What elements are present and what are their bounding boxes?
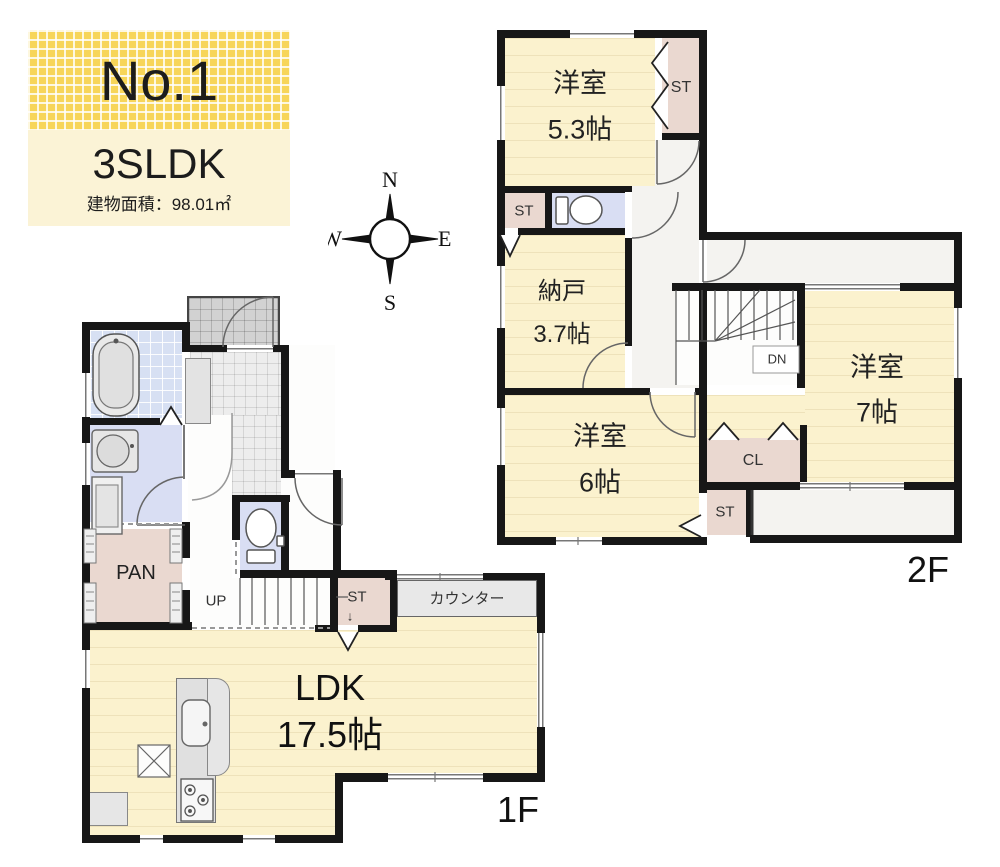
entrance-door-opening [227,345,273,352]
label-st-mid: ST [514,204,533,219]
wall [518,228,628,235]
window [954,308,962,378]
wall [699,232,962,240]
room-nando [505,235,625,388]
wall [281,345,289,478]
compass-e: E [438,226,451,251]
wall [82,622,192,630]
wall [390,573,397,632]
wall [330,578,338,632]
wall [497,186,628,193]
cabinet [85,792,128,826]
window [243,835,275,843]
label-bedroom6-name: 洋室 [573,424,627,451]
building-area: 建物面積：98.01㎡ [87,190,232,215]
wall [82,835,343,843]
compass-w: W [328,226,342,251]
stairwell-2f [676,290,800,385]
room-bedroom53 [505,38,655,186]
label-counter: カウンター [429,592,504,607]
wall [232,495,240,540]
window [140,835,163,843]
door-opening [625,346,632,388]
window [82,373,90,417]
plan-number: No.1 [100,48,218,113]
label-bedroom53-name: 洋室 [553,71,607,98]
room-bedroom7-ext [707,395,805,438]
label-bedroom7-size: 7帖 [856,400,898,427]
door-opening [182,558,190,590]
window [556,537,602,545]
window [497,86,505,140]
door-opening [699,493,707,537]
window [82,650,90,688]
wall [232,570,337,578]
label-stairs-dn: DN [768,353,787,366]
wall [746,490,753,537]
toilet-room-2f [552,192,625,228]
wall [82,418,160,425]
layout-type: 3SLDK [92,141,225,187]
label-stairs-up: UP [206,594,227,609]
entrance-porch [187,296,280,350]
door-opening [625,192,632,238]
compass-circle [370,219,410,259]
floorplan-canvas: No.1 3SLDK 建物面積：98.01㎡ N S W E [0,0,1000,867]
window [497,408,505,465]
wall [315,625,338,632]
wall [82,322,188,330]
wall [358,625,397,632]
wall [333,470,341,578]
wall [281,470,295,478]
shoe-cabinet [185,358,211,424]
wall [750,535,962,543]
plan-number-banner: No.1 [28,30,290,130]
sliding-window [537,633,545,727]
label-floor2: 2F [907,552,949,588]
label-pantry: PAN [116,563,156,583]
wall [662,133,707,140]
bathroom [90,330,182,418]
compass-rose: N S W E [328,170,458,315]
label-bedroom6-size: 6帖 [579,470,621,497]
wall [182,345,227,352]
sliding-window [800,482,904,490]
wall [797,283,805,388]
kitchen-counter-return [207,678,230,776]
label-cl: CL [743,453,763,469]
balcony [753,490,954,535]
room-bedroom6 [505,395,699,537]
wall [800,425,807,487]
door-opening [232,540,240,578]
sliding-window [388,773,483,782]
label-nando-name: 納戸 [538,280,586,304]
label-ldk-name: LDK [295,670,365,706]
label-st-top: ST [671,80,691,96]
hall-upper [655,140,699,186]
genkan-tile [232,415,281,502]
label-bedroom7-name: 洋室 [850,355,904,382]
room-bedroom7 [805,290,954,482]
wall [335,773,343,843]
compass-s: S [384,290,396,315]
window [497,266,505,328]
wall [954,232,962,543]
toilet-room-1f [240,502,281,570]
label-st-arrow: ↓ [347,610,354,623]
stairwell-1f [240,578,330,625]
label-bedroom53-size: 5.3帖 [548,117,613,144]
washroom [90,425,182,522]
label-st-1f: ST [347,590,366,605]
sliding-window [397,573,483,580]
compass-needles [342,194,438,284]
wall [497,537,707,545]
door-opening [650,388,695,395]
door-opening [295,470,333,478]
window [570,30,634,38]
label-ldk-size: 17.5帖 [277,717,383,753]
label-st-bottom: ST [715,505,734,520]
hall-strip [707,240,954,283]
window [82,443,90,485]
wall [281,495,289,578]
label-nando-size: 3.7帖 [533,323,590,347]
compass-n: N [382,170,398,192]
label-floor1: 1F [497,792,539,828]
plan-summary: 3SLDK 建物面積：98.01㎡ [28,130,290,226]
sliding-window [805,283,900,291]
